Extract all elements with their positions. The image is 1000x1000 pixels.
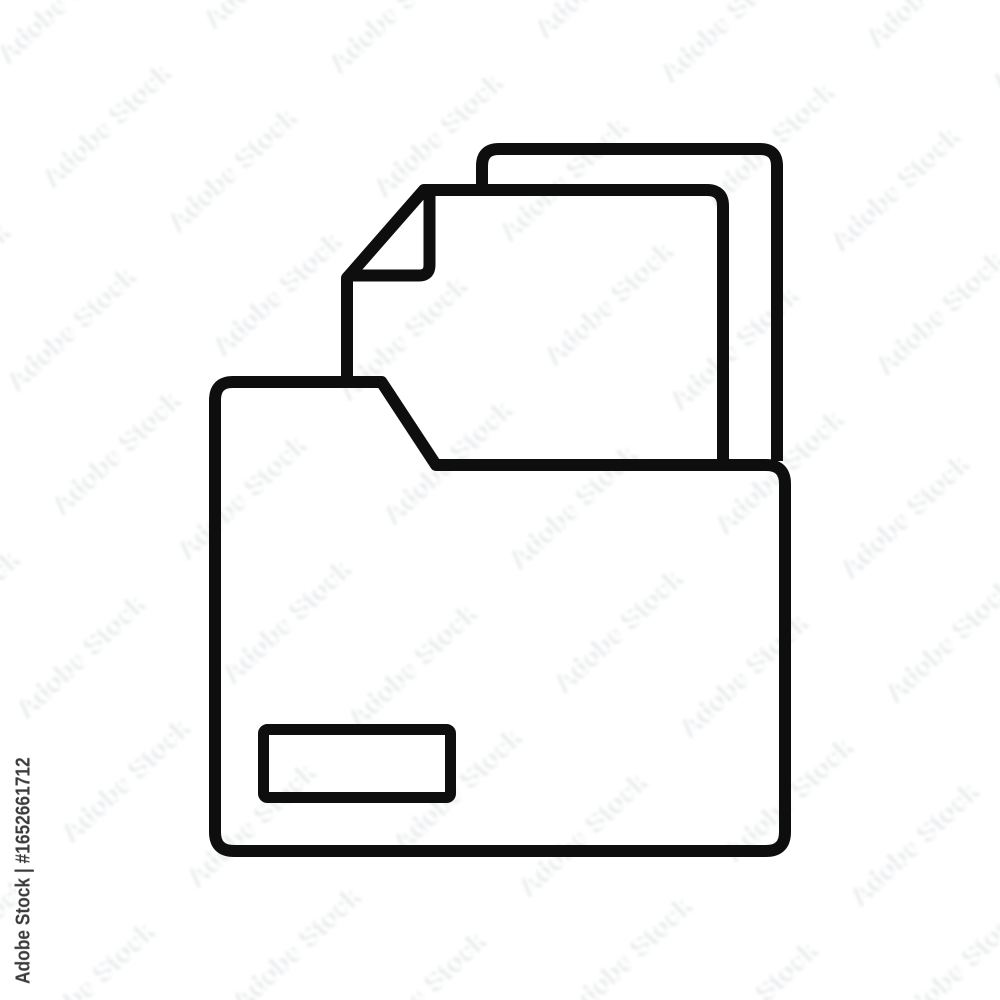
svg-text:Adobe Stock | #1652661712: Adobe Stock | #1652661712 xyxy=(11,757,33,984)
